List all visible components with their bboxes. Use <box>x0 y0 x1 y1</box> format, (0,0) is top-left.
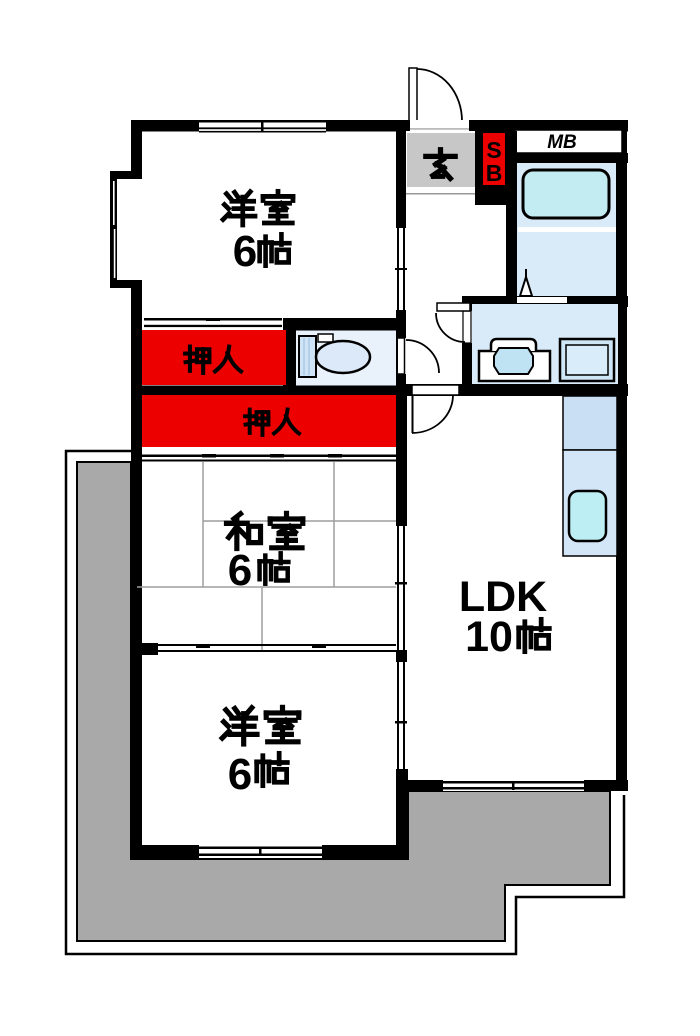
svg-text:6: 6 <box>228 546 252 595</box>
svg-text:B: B <box>486 160 503 186</box>
svg-text:MB: MB <box>547 132 577 153</box>
svg-text:6: 6 <box>228 750 252 799</box>
svg-text:10: 10 <box>465 613 513 661</box>
svg-text:6: 6 <box>233 227 257 276</box>
